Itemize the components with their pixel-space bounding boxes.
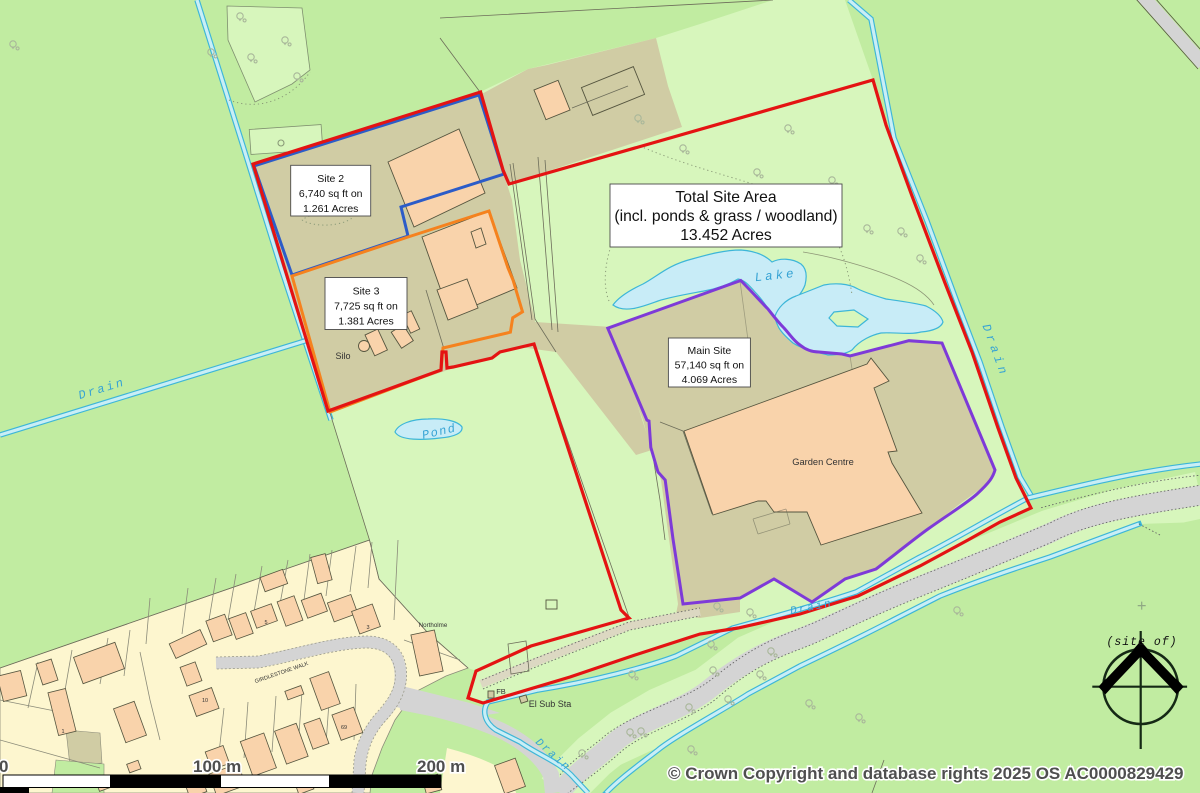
svg-text:10: 10 — [202, 698, 208, 704]
svg-text:Silo: Silo — [335, 351, 350, 361]
svg-text:69: 69 — [341, 725, 347, 731]
svg-text:Site 2: Site 2 — [317, 173, 344, 185]
svg-text:(site of): (site of) — [1106, 636, 1177, 649]
svg-text:Total Site Area: Total Site Area — [675, 189, 776, 206]
svg-text:1: 1 — [61, 729, 64, 735]
svg-text:Site 3: Site 3 — [353, 286, 380, 298]
svg-text:1.261 Acres: 1.261 Acres — [303, 203, 358, 215]
svg-text:© Crown Copyright and database: © Crown Copyright and database rights 20… — [668, 764, 1183, 783]
svg-text:(incl. ponds & grass / woodlan: (incl. ponds & grass / woodland) — [614, 208, 837, 225]
svg-text:6,740 sq ft on: 6,740 sq ft on — [299, 188, 363, 200]
svg-text:FB: FB — [496, 687, 506, 696]
svg-text:200 m: 200 m — [417, 757, 465, 776]
svg-text:100 m: 100 m — [193, 757, 241, 776]
svg-text:Garden Centre: Garden Centre — [792, 457, 854, 467]
svg-text:Main Site: Main Site — [688, 345, 732, 357]
svg-text:Northolme: Northolme — [419, 622, 448, 629]
svg-text:5: 5 — [264, 620, 267, 626]
svg-text:7,725 sq ft on: 7,725 sq ft on — [334, 301, 398, 313]
svg-text:1.381 Acres: 1.381 Acres — [338, 316, 393, 328]
svg-text:57,140 sq ft on: 57,140 sq ft on — [675, 360, 745, 372]
svg-text:El Sub Sta: El Sub Sta — [529, 699, 572, 709]
svg-text:3: 3 — [366, 625, 369, 631]
svg-text:0: 0 — [0, 757, 8, 776]
svg-text:13.452 Acres: 13.452 Acres — [680, 227, 772, 244]
svg-text:4.069 Acres: 4.069 Acres — [682, 374, 737, 386]
